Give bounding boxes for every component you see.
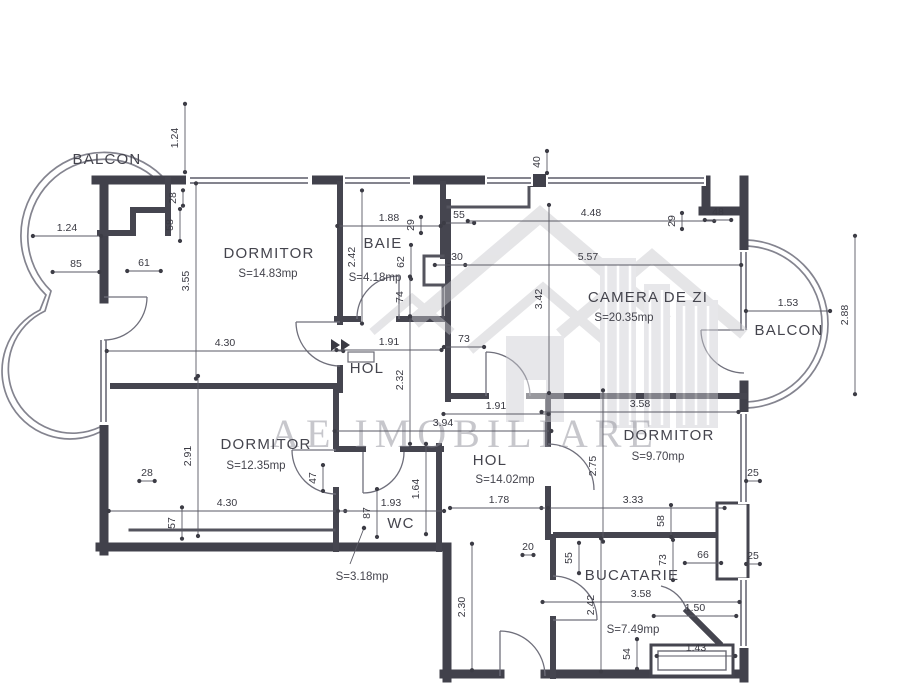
dimension-value: 48: [712, 206, 724, 218]
dimension-dot: [336, 509, 340, 513]
dimension-dot: [107, 509, 111, 513]
dimension-value: 3.58: [631, 588, 652, 600]
dimension-dot: [719, 561, 723, 565]
dimension-dot: [547, 391, 551, 395]
dimension-dot: [599, 669, 603, 673]
dimension-dot: [601, 388, 605, 392]
left-balcony-parapet-outer: [2, 152, 162, 439]
dimension-dot: [178, 207, 182, 211]
dimension-value: 29: [405, 219, 417, 231]
dimension-value: 4.30: [215, 337, 236, 349]
dimension-dot: [652, 614, 656, 618]
dimension-value: 3.55: [180, 271, 192, 292]
dimension-dot: [744, 479, 748, 483]
dimension-dot: [671, 538, 675, 542]
dimension-value: 55: [563, 552, 575, 564]
room-area-dormitor-1: S=14.83mp: [238, 268, 297, 280]
dimension-dot: [635, 637, 639, 641]
dimension-dot: [424, 442, 428, 446]
dimension-dot: [424, 532, 428, 536]
dimension-dot: [433, 263, 437, 267]
dimension-value: 73: [657, 554, 669, 566]
dimension-dot: [181, 188, 185, 192]
dimension-dot: [360, 321, 364, 325]
dimension-dot: [758, 479, 762, 483]
dimension-dot: [408, 314, 412, 318]
dimension-dot: [159, 269, 163, 273]
dimension-dot: [442, 221, 446, 225]
dimension-value: 25: [747, 550, 759, 562]
dimension-value: 2.32: [394, 370, 406, 391]
dimension-value: 2.42: [585, 595, 597, 616]
door-left-balcony: [104, 297, 147, 340]
dimension-dot: [448, 506, 452, 510]
dimension-value: 28: [167, 192, 179, 204]
dimension-dot: [442, 509, 446, 513]
room-area-bucatarie: S=7.49mp: [607, 624, 660, 636]
dimension-dot: [333, 429, 337, 433]
dimension-dot: [655, 654, 659, 658]
dimension-value: 58: [164, 219, 176, 231]
watermark-brand-text: AE IMOBILIARE: [270, 411, 660, 456]
dimension-dot: [744, 309, 748, 313]
dimension-value: 3.42: [533, 289, 545, 310]
dimension-value: 1.24: [57, 222, 78, 234]
room-label-hol-1: HOL: [350, 360, 384, 377]
room-label-wc: WC: [387, 515, 414, 532]
dimension-dot: [335, 224, 339, 228]
dimension-dot: [341, 349, 345, 353]
dimension-dot: [547, 203, 551, 207]
dimension-dot: [441, 412, 445, 416]
room-area-camera-de-zi: S=20.35mp: [594, 312, 653, 324]
dimension-value: 4.48: [581, 207, 602, 219]
dimension-value: 1.91: [379, 336, 400, 348]
dimension-value: 1.78: [489, 494, 510, 506]
dimension-value: 4.30: [217, 497, 238, 509]
dimension-dot: [375, 535, 379, 539]
dimension-value: 2.91: [182, 446, 194, 467]
dimension-dot: [408, 442, 412, 446]
dimension-value: 1.88: [379, 212, 400, 224]
dimension-dot: [729, 218, 733, 222]
dimension-value: 73: [458, 333, 470, 345]
dimension-dot: [722, 506, 726, 510]
dimension-value: 28: [141, 467, 153, 479]
door-wc: [363, 452, 404, 493]
dimension-value: 1.43: [686, 642, 707, 654]
dimension-dot: [125, 269, 129, 273]
floorplan-scan: AE IMOBILIARE BALCON DORMITOR S=14.83mp …: [0, 0, 913, 688]
dimension-value: 5.57: [578, 251, 599, 263]
dimension-dot: [360, 188, 364, 192]
dimension-dot: [180, 537, 184, 541]
dimension-dot: [734, 614, 738, 618]
dimension-dot: [442, 345, 446, 349]
dimension-dot: [853, 234, 857, 238]
dimension-dot: [408, 275, 412, 279]
dimension-dot: [482, 345, 486, 349]
dimension-dot: [31, 234, 35, 238]
room-label-hol-2: HOL: [473, 452, 507, 469]
dimension-dot: [577, 571, 581, 575]
dimension-dot: [546, 412, 550, 416]
room-area-hol-2: S=14.02mp: [475, 474, 534, 486]
dimension-dot: [470, 542, 474, 546]
dimension-dot: [196, 534, 200, 538]
dimension-dot: [549, 429, 553, 433]
room-label-dormitor-1: DORMITOR: [224, 245, 315, 262]
dimension-dot: [321, 463, 325, 467]
dimension-value: 1.91: [486, 400, 507, 412]
room-area-dormitor-3: S=9.70mp: [632, 451, 685, 463]
dimension-dot: [828, 309, 832, 313]
dimension-dot: [419, 231, 423, 235]
dimension-dot: [712, 219, 716, 223]
dimension-dot: [680, 227, 684, 231]
dimension-value: 3.94: [433, 417, 454, 429]
dimension-dot: [758, 562, 762, 566]
dimension-dot: [744, 562, 748, 566]
room-area-baie: S=4.18mp: [349, 272, 402, 284]
dimension-value: 20: [522, 541, 534, 553]
dimension-dot: [545, 149, 549, 153]
dimension-dot: [531, 553, 535, 557]
dimension-dot: [635, 667, 639, 671]
dimension-value: 1.24: [169, 128, 181, 149]
dimension-dot: [178, 239, 182, 243]
dimension-dot: [439, 224, 443, 228]
dimension-value: 3.58: [630, 398, 651, 410]
dimension-dot: [683, 561, 687, 565]
room-label-bucatarie: BUCATARIE: [585, 567, 679, 584]
room-area-dormitor-2: S=12.35mp: [226, 460, 285, 472]
dimension-value: 30: [451, 251, 463, 263]
dimension-dot: [183, 170, 187, 174]
room-label-dormitor-3: DORMITOR: [624, 427, 715, 444]
door-bedroom2: [292, 450, 336, 494]
dimension-value: 57: [166, 517, 178, 529]
dimension-value: 47: [307, 472, 319, 484]
dimension-dot: [669, 503, 673, 507]
dimension-dot: [181, 204, 185, 208]
dimension-dot: [194, 181, 198, 185]
dimension-dot: [599, 536, 603, 540]
dimension-dot: [105, 349, 109, 353]
dimension-dot: [545, 171, 549, 175]
dimension-dot: [470, 668, 474, 672]
dimension-value: 3.33: [623, 494, 644, 506]
door-entrance: [500, 631, 545, 676]
dimension-dot: [577, 541, 581, 545]
dimension-dot: [97, 270, 101, 274]
room-label-camera-de-zi: CAMERA DE ZI: [588, 289, 708, 306]
dimension-value: 74: [394, 291, 406, 303]
dimension-value: 85: [70, 258, 82, 270]
dimension-value: 2.30: [456, 597, 468, 618]
dimension-dot: [180, 505, 184, 509]
dimension-dot: [520, 553, 524, 557]
door-kitchen-diagonal-swing: [661, 586, 687, 611]
dimension-dot: [680, 211, 684, 215]
dimension-value: 55: [453, 209, 465, 221]
dimension-dot: [546, 506, 550, 510]
dimension-dot: [736, 410, 740, 414]
dimension-value: 2.88: [839, 305, 851, 326]
dimension-value: 61: [138, 257, 150, 269]
dimension-value: 2.75: [587, 456, 599, 477]
right-wall-niche: [717, 503, 748, 579]
dimension-dot: [334, 348, 338, 352]
dimension-dot: [703, 218, 707, 222]
dimension-dot: [853, 392, 857, 396]
dimension-dot: [539, 410, 543, 414]
dimension-dot: [153, 479, 157, 483]
dimension-value: 29: [666, 215, 678, 227]
leader-dot: [362, 526, 366, 530]
dimension-dot: [375, 487, 379, 491]
dimension-dot: [472, 221, 476, 225]
room-label-baie: BAIE: [364, 235, 403, 252]
dimension-dot: [51, 270, 55, 274]
dimension-value: 2.42: [346, 247, 358, 268]
dimension-value: 66: [697, 549, 709, 561]
dimension-value: 25: [747, 467, 759, 479]
room-label-balcon-left: BALCON: [73, 151, 142, 168]
dimension-dot: [540, 600, 544, 604]
dimension-value: 1.53: [778, 297, 799, 309]
dimension-value: 58: [655, 515, 667, 527]
dimension-dot: [183, 102, 187, 106]
dimension-value: 62: [395, 256, 407, 268]
dimension-dot: [739, 263, 743, 267]
dimension-dot: [99, 234, 103, 238]
dimension-value: 1.93: [381, 497, 402, 509]
left-balcony-parapet-inner: [8, 159, 158, 433]
dimension-value: 1.64: [410, 479, 422, 500]
dimension-dot: [733, 654, 737, 658]
dimension-dot: [419, 215, 423, 219]
floor-plan-drawing: AE IMOBILIARE BALCON DORMITOR S=14.83mp …: [0, 0, 913, 688]
dimension-dot: [466, 219, 470, 223]
dimension-dot: [196, 374, 200, 378]
dimension-value: 1.50: [685, 602, 706, 614]
dimension-value: 40: [531, 156, 543, 168]
room-label-dormitor-2: DORMITOR: [221, 436, 312, 453]
dimension-dot: [737, 600, 741, 604]
room-label-balcon-right: BALCON: [755, 322, 824, 339]
dimension-dot: [671, 578, 675, 582]
dimension-dot: [321, 489, 325, 493]
dimension-dot: [137, 479, 141, 483]
dimension-value: 87: [361, 507, 373, 519]
dimension-dot: [409, 243, 413, 247]
dimension-value: 54: [621, 648, 633, 660]
room-area-wc: S=3.18mp: [336, 571, 389, 583]
